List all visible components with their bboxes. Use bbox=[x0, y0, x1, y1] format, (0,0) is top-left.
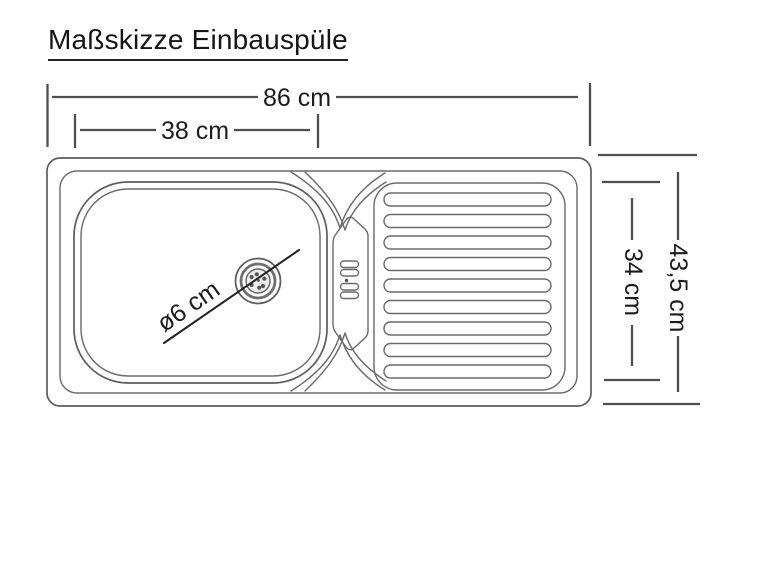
overflow-hole bbox=[341, 270, 359, 277]
dimension-inner-depth: 34 cm bbox=[602, 182, 660, 380]
dimension-basin-width: 38 cm bbox=[75, 114, 318, 148]
page: Maßskizze Einbauspüle 86 cm 38 cm bbox=[0, 0, 770, 578]
overflow-holes bbox=[341, 261, 359, 299]
dim-label-drain-diameter: ø6 cm bbox=[152, 275, 225, 337]
dimension-total-depth: 43,5 cm bbox=[598, 155, 700, 404]
sink-outline bbox=[47, 158, 591, 406]
sink-technical-drawing: 86 cm 38 cm bbox=[0, 0, 770, 578]
drainer-board bbox=[374, 183, 565, 390]
overflow-hole bbox=[341, 284, 359, 291]
drain-strainer bbox=[236, 259, 281, 304]
drainer-groove bbox=[384, 301, 551, 314]
drainer-groove bbox=[384, 258, 551, 271]
overflow-hole bbox=[341, 292, 359, 299]
overflow-hole bbox=[341, 261, 359, 268]
drainer-groove bbox=[384, 193, 551, 206]
drainer-groove bbox=[384, 365, 551, 378]
drainer-groove bbox=[384, 215, 551, 228]
rim-connector-top-outer bbox=[291, 172, 385, 228]
drainer-groove bbox=[384, 279, 551, 292]
overflow-dot bbox=[345, 279, 348, 282]
dim-label-basin-width: 38 cm bbox=[161, 117, 229, 145]
drainer-groove bbox=[384, 322, 551, 335]
dim-label-total-depth: 43,5 cm bbox=[664, 244, 692, 333]
dim-label-total-width: 86 cm bbox=[263, 84, 331, 112]
dim-label-inner-depth: 34 cm bbox=[619, 248, 647, 316]
drainer-groove bbox=[384, 344, 551, 357]
drainer-groove bbox=[384, 236, 551, 249]
